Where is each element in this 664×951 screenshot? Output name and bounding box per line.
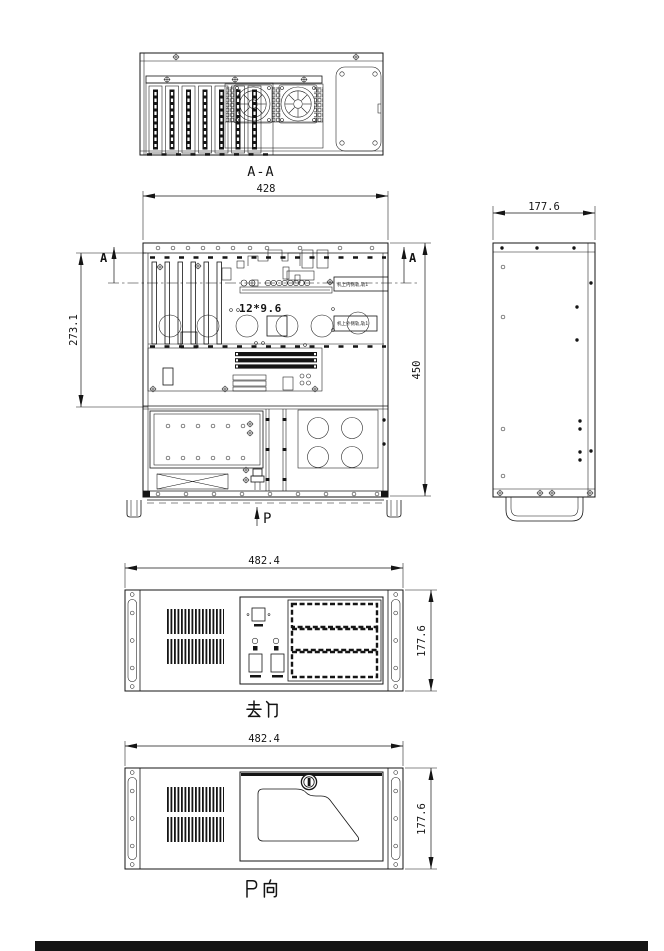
direction-label-p: P: [263, 511, 271, 527]
power-led: [252, 638, 258, 644]
sheet-border-bar: [35, 941, 648, 951]
side-view: 177.6: [493, 201, 595, 521]
hole-note: 12*9.6: [239, 302, 282, 315]
drive-bay-2: [292, 629, 377, 650]
drive-bay-3: [292, 652, 377, 677]
reset-button: [249, 654, 262, 672]
front-latch: [243, 467, 264, 490]
dim-height-450: 450: [411, 361, 423, 380]
chassis-foot-right: [387, 500, 401, 517]
front-door-panel: [240, 772, 383, 861]
rail-note-box-upper: 机上内侧轨,轨1: [334, 277, 388, 291]
svg-text:P向: P向: [244, 882, 271, 902]
section-marker-right: A: [409, 251, 417, 265]
svg-text:机上内侧轨,轨1: 机上内侧轨,轨1: [337, 281, 368, 288]
fan-rear-right: [279, 85, 317, 123]
dim-width-482-door: 482.4: [248, 733, 280, 745]
drive-bay-zone: [150, 409, 287, 491]
dim-width-428: 428: [257, 183, 276, 195]
side-handle: [506, 497, 583, 521]
dim-width-482-nodoor: 482.4: [248, 555, 280, 567]
front-fan-mounts: [298, 410, 386, 468]
rail-note-box-lower: 机上外侧轨,轨1: [334, 316, 377, 331]
dim-height-177-door: 177.6: [416, 803, 428, 835]
drawing-sheet: A-A 428 450 273.1 A A: [0, 0, 664, 951]
front-view-door: 482.4 177.6 P向: [125, 733, 437, 902]
dim-height-177-nodoor: 177.6: [416, 625, 428, 657]
hdd-led: [273, 638, 279, 644]
chassis-foot-left: [127, 500, 141, 517]
speaker-box: [157, 474, 228, 489]
psu-cutout: [336, 67, 381, 151]
section-label: A-A: [247, 164, 274, 180]
svg-text:机上外侧轨,轨1: 机上外侧轨,轨1: [337, 320, 368, 327]
label-p-direction: P向: [244, 880, 276, 902]
front-control-panel: [240, 597, 383, 684]
power-button: [252, 608, 265, 621]
front-edge-screws: [156, 492, 379, 496]
section-marker-left: A: [100, 251, 108, 265]
dim-height-273: 273.1: [68, 314, 80, 346]
section-view-aa: A-A: [140, 53, 383, 180]
drive-bays: [288, 600, 381, 681]
top-rail-screws: [156, 246, 374, 250]
label-no-door: 去门: [245, 701, 279, 722]
door-window-cutout: [258, 789, 359, 841]
dim-depth-177: 177.6: [528, 201, 560, 213]
motherboard-zone: [148, 348, 322, 392]
svg-text:去门: 去门: [245, 702, 279, 722]
front-view-no-door: 482.4 177.6 去门: [125, 555, 437, 722]
top-view: 428 450 273.1 A A: [68, 183, 431, 527]
drive-bay-1: [292, 604, 377, 627]
door-lock: [301, 774, 316, 789]
keylock-switch: [271, 654, 284, 672]
